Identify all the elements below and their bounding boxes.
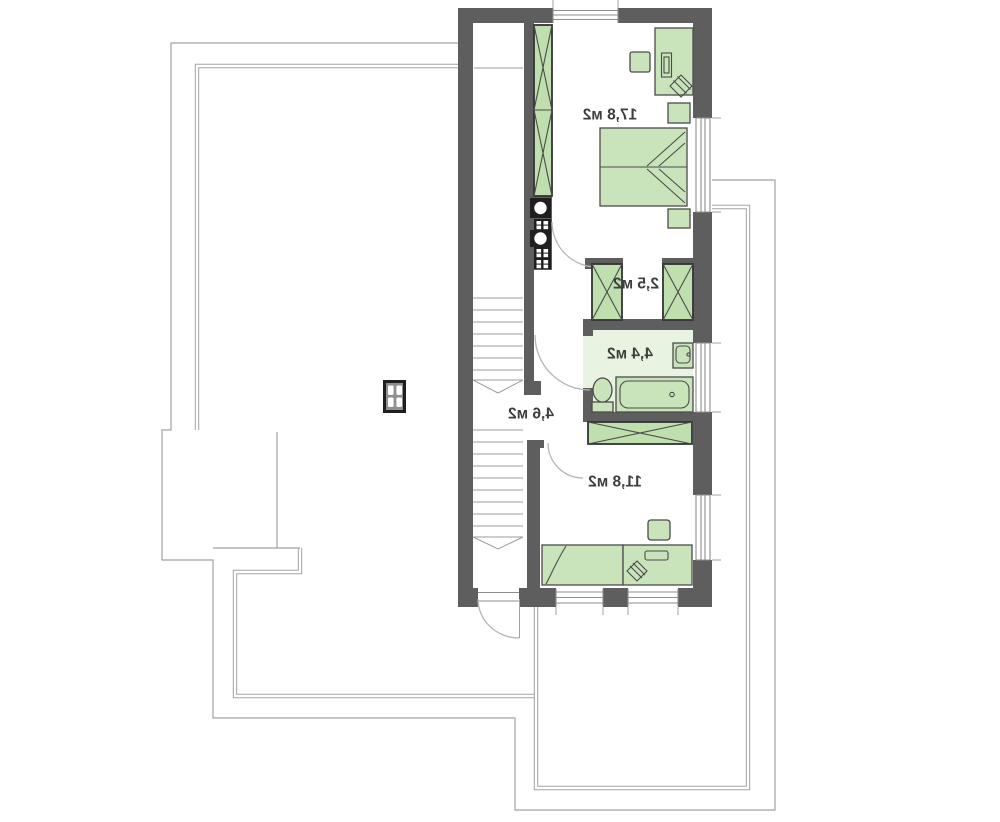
single-bed bbox=[542, 545, 623, 585]
window-right-2-ticks bbox=[712, 343, 721, 412]
wall-left bbox=[458, 8, 473, 607]
shaft-vent bbox=[544, 260, 549, 264]
shaft-vent bbox=[544, 249, 549, 253]
shaft-vent bbox=[544, 221, 549, 225]
bay-outline-path bbox=[213, 432, 300, 548]
chimney-flue bbox=[388, 386, 394, 396]
ground-outline-right-core bbox=[536, 207, 748, 788]
chimney-icon bbox=[383, 380, 406, 413]
chimney-flue bbox=[396, 398, 402, 408]
shaft-vent bbox=[544, 254, 549, 258]
ground-outline-left bbox=[197, 66, 458, 430]
window-bottom-2-glazing bbox=[628, 589, 678, 606]
ground-outline-right bbox=[536, 207, 748, 788]
desk bbox=[655, 28, 693, 95]
wall-bottom-2 bbox=[519, 588, 556, 607]
door-arc-exterior bbox=[478, 599, 519, 638]
nightstand-2 bbox=[668, 209, 690, 228]
chimney-flue bbox=[388, 398, 394, 408]
label-bathroom: 4,4 м2 bbox=[607, 346, 653, 363]
shaft-vent bbox=[537, 226, 542, 230]
wall-right-3 bbox=[693, 412, 712, 495]
stool bbox=[630, 52, 650, 72]
stair-flight-lower bbox=[473, 430, 523, 526]
ground-outline-left-core bbox=[197, 66, 458, 430]
shaft-vent bbox=[544, 265, 549, 269]
shaft-vent bbox=[537, 221, 542, 225]
window-right-3-ticks bbox=[712, 495, 721, 560]
chimney-flue bbox=[396, 386, 402, 396]
wall-stairwell-cap bbox=[524, 381, 541, 395]
furniture-bedroom-large bbox=[534, 25, 693, 228]
staircase bbox=[473, 68, 523, 549]
wall-hall-bedroom2 bbox=[527, 440, 540, 590]
floor-plan-drawing: 17,8 м2 2,5 м2 4,4 м2 4,6 м2 11,8 м2 bbox=[0, 0, 1000, 822]
label-bedroom-large: 17,8 м2 bbox=[583, 107, 638, 124]
label-hallway: 4,6 м2 bbox=[508, 406, 554, 423]
shaft-vent bbox=[537, 260, 542, 264]
window-right-1-ticks bbox=[712, 118, 721, 212]
shaft-duct-circle-2 bbox=[534, 232, 546, 244]
label-closet: 2,5 м2 bbox=[613, 276, 659, 293]
nightstand-1 bbox=[668, 103, 690, 123]
door-threshold-exterior bbox=[478, 593, 519, 602]
door-arc-bedroom-small bbox=[548, 443, 583, 478]
wall-bath-bottom bbox=[583, 412, 693, 422]
toilet-tank bbox=[592, 402, 613, 412]
door-arc-bathroom bbox=[535, 335, 590, 390]
stair-arrow-lower bbox=[473, 537, 523, 549]
shaft-vent bbox=[537, 265, 542, 269]
wall-bottom-1 bbox=[458, 588, 478, 607]
stool-2 bbox=[648, 520, 670, 540]
stair-flight-upper bbox=[473, 298, 523, 370]
floor-plan-canvas: 17,8 м2 2,5 м2 4,4 м2 4,6 м2 11,8 м2 bbox=[0, 0, 1000, 822]
shaft-duct-circle-1 bbox=[534, 202, 546, 214]
window-top-ticks bbox=[553, 0, 618, 8]
bathtub bbox=[616, 377, 693, 412]
shaft-vent bbox=[544, 226, 549, 230]
ground-outline-lower-left bbox=[235, 548, 536, 696]
wall-bath-stub-top bbox=[583, 330, 593, 336]
wall-bottom-mullion bbox=[603, 588, 628, 607]
window-bottom-1-glazing bbox=[556, 589, 603, 606]
toilet-bowl bbox=[593, 378, 612, 402]
shaft-vent bbox=[537, 249, 542, 253]
furniture-bedroom-small bbox=[542, 422, 692, 585]
label-bedroom-small: 11,8 м2 bbox=[588, 474, 642, 491]
wall-bottom-corner bbox=[678, 588, 712, 607]
window-bottom-ticks bbox=[556, 607, 678, 615]
shaft-vent bbox=[537, 254, 542, 258]
wall-right-1 bbox=[693, 8, 712, 118]
stair-arrow-upper bbox=[473, 380, 523, 393]
